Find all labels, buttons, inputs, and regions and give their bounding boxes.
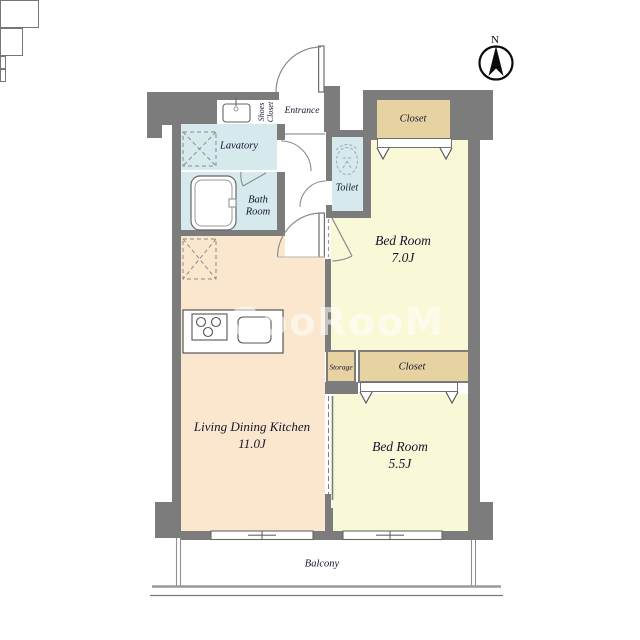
sliding-partition xyxy=(329,396,333,500)
ldk-name: Living Dining Kitchen xyxy=(194,419,310,436)
floor-plan: N xyxy=(0,0,640,640)
compass-icon: N xyxy=(480,34,513,80)
bedroom5-name: Bed Room xyxy=(372,439,428,456)
wall xyxy=(468,140,480,502)
bedroom7-size: 7.0J xyxy=(375,250,431,267)
ldk-window xyxy=(211,531,313,540)
entrance-door-jamb xyxy=(0,56,6,69)
wall xyxy=(172,125,181,503)
compass-n-label: N xyxy=(491,34,499,46)
washbasin-icon xyxy=(223,97,250,122)
toilet-floor xyxy=(332,137,363,211)
closet-mid-label: Closet xyxy=(399,362,426,373)
wall xyxy=(325,382,358,394)
wall xyxy=(181,92,217,126)
sink-alcove xyxy=(0,0,39,28)
ldk-size: 11.0J xyxy=(194,436,310,453)
shoes-closet-box xyxy=(0,28,23,56)
toilet-label: Toilet xyxy=(336,183,358,194)
wall xyxy=(326,210,363,218)
storage-label: Storage xyxy=(329,363,352,372)
entrance-label: Entrance xyxy=(285,106,320,116)
wall xyxy=(147,92,181,125)
bedroom5-size: 5.5J xyxy=(372,456,428,473)
entrance-floor xyxy=(285,98,324,134)
wall xyxy=(363,130,371,218)
wall xyxy=(277,124,285,140)
wall xyxy=(181,531,211,540)
wall xyxy=(147,125,162,138)
bedroom7-label: Bed Room 7.0J xyxy=(375,233,431,267)
ldk-label: Living Dining Kitchen 11.0J xyxy=(194,419,310,453)
entrance-door-jamb xyxy=(0,69,6,82)
ldk-floor-right xyxy=(285,257,325,531)
hall-floor xyxy=(285,134,326,258)
lavatory-label: Lavatory xyxy=(220,141,258,152)
bath-room-label: Bath Room xyxy=(236,194,280,218)
ldk-floor xyxy=(181,236,285,531)
balcony-label: Balcony xyxy=(305,559,339,570)
closet-top-track xyxy=(377,138,452,148)
closet-mid-track xyxy=(360,382,458,392)
bedroom7-name: Bed Room xyxy=(375,233,431,250)
closet-top-label: Closet xyxy=(400,114,427,125)
bedroom5-window xyxy=(343,531,442,540)
entrance-door xyxy=(276,46,324,92)
bedroom7-floor-upper xyxy=(371,140,468,220)
wall xyxy=(324,86,340,132)
shoes-closet-label: Shoes Closet xyxy=(258,97,276,127)
bedroom5-label: Bed Room 5.5J xyxy=(372,439,428,473)
